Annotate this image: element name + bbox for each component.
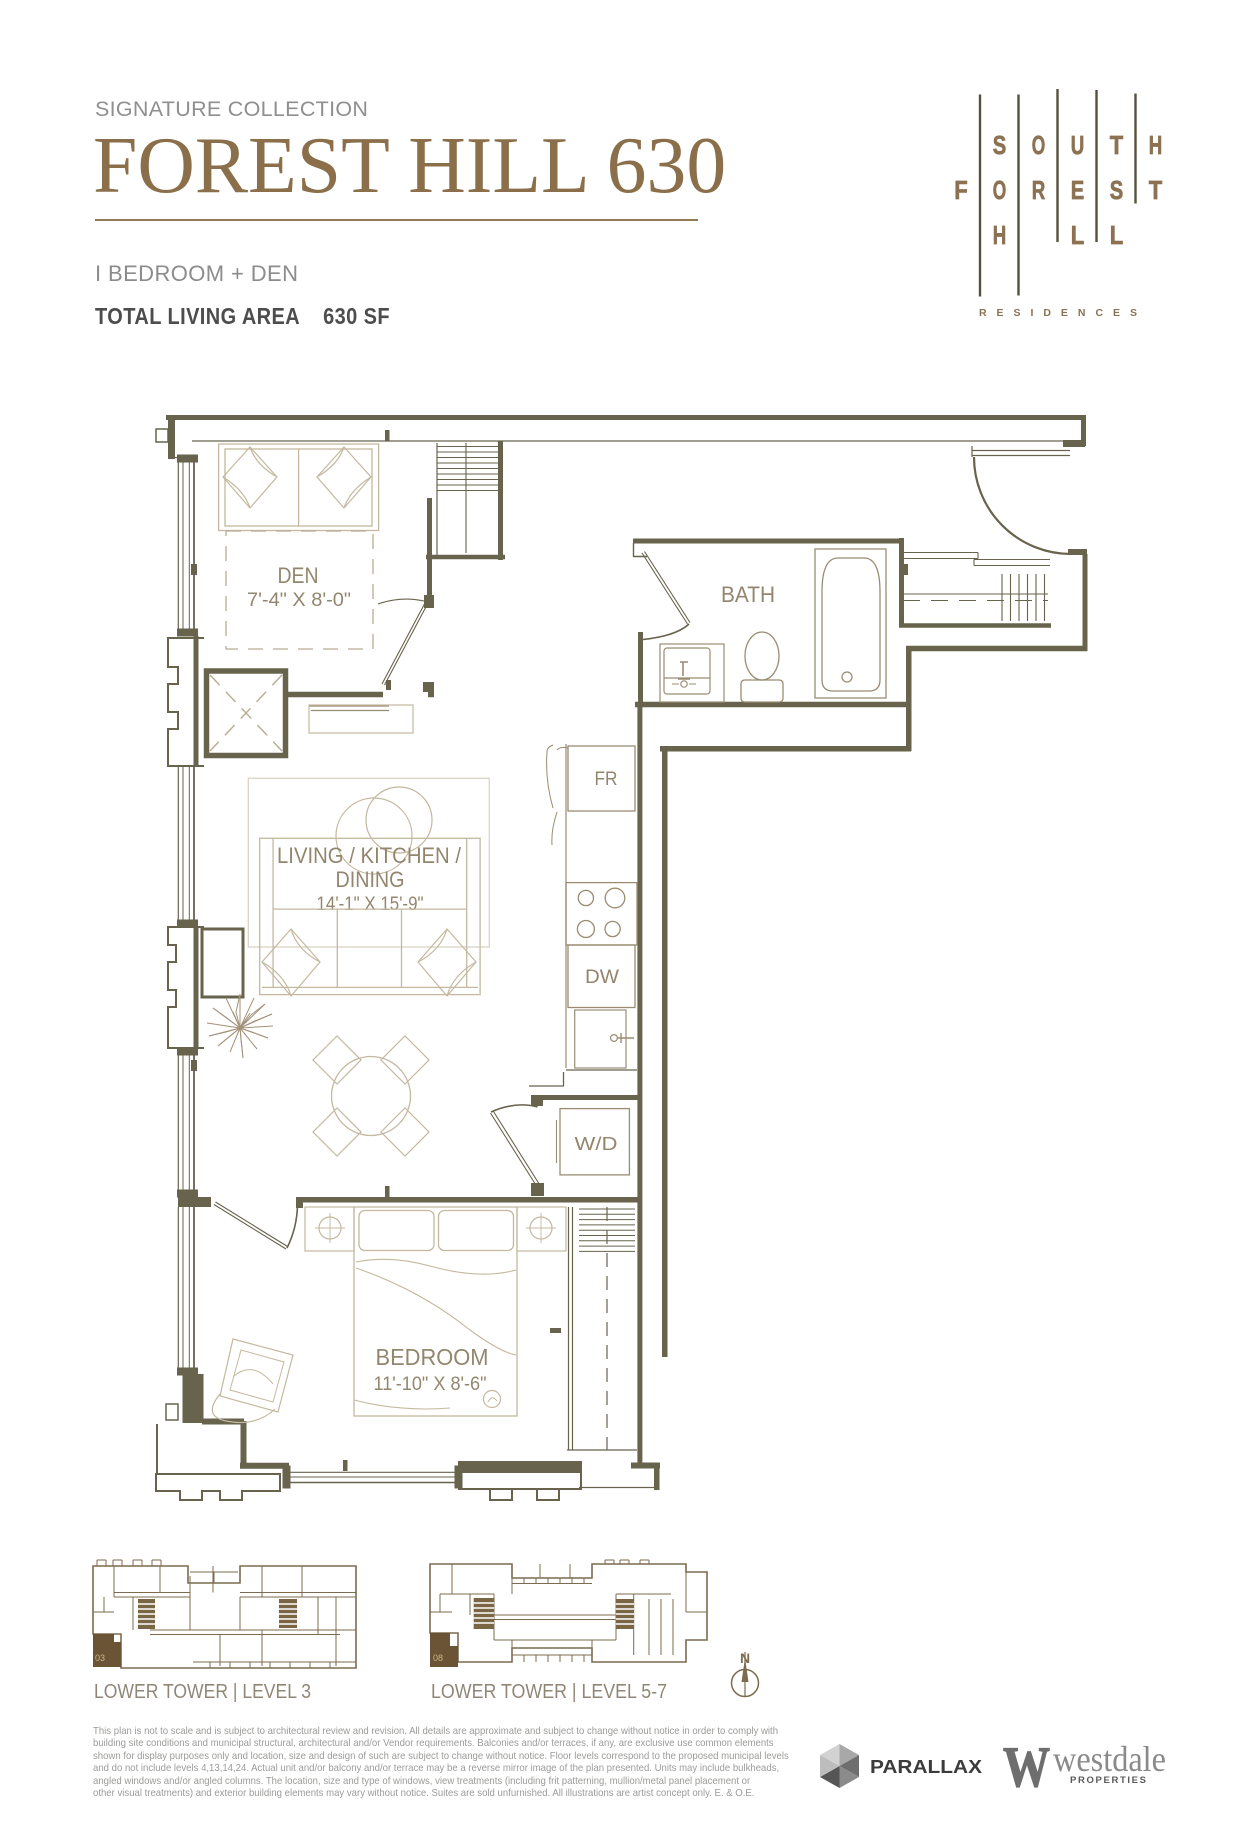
svg-text:RESIDENCES: RESIDENCES [979, 307, 1137, 319]
svg-text:T: T [1149, 175, 1163, 205]
svg-text:S: S [1110, 175, 1124, 205]
svg-text:O: O [993, 175, 1007, 205]
svg-text:LOWER TOWER | LEVEL 5-7: LOWER TOWER | LEVEL 5-7 [431, 1681, 667, 1703]
svg-text:FR: FR [595, 769, 618, 790]
svg-text:DEN: DEN [278, 563, 319, 588]
svg-text:L: L [1110, 220, 1124, 250]
svg-text:E: E [1071, 175, 1085, 205]
svg-text:W/D: W/D [575, 1134, 618, 1154]
svg-text:LOWER TOWER | LEVEL 3: LOWER TOWER | LEVEL 3 [94, 1681, 311, 1703]
svg-text:LIVING / KITCHEN /: LIVING / KITCHEN / [277, 843, 462, 868]
svg-text:PARALLAX: PARALLAX [870, 1757, 982, 1777]
svg-text:H: H [1149, 130, 1163, 160]
svg-text:F: F [954, 175, 968, 205]
svg-text:DW: DW [585, 967, 619, 988]
svg-text:03: 03 [95, 1653, 105, 1663]
svg-text:BATH: BATH [721, 582, 775, 607]
svg-text:11'-10" X 8'-6": 11'-10" X 8'-6" [374, 1373, 487, 1395]
svg-text:BEDROOM: BEDROOM [376, 1344, 489, 1370]
svg-text:R: R [1032, 175, 1046, 205]
svg-text:7'-4" X 8'-0": 7'-4" X 8'-0" [247, 590, 351, 611]
svg-text:U: U [1071, 130, 1085, 160]
svg-text:T: T [1110, 130, 1124, 160]
svg-text:O: O [1032, 130, 1046, 160]
svg-text:westdale: westdale [1053, 1739, 1166, 1779]
svg-text:14'-1" X 15'-9": 14'-1" X 15'-9" [317, 894, 424, 915]
svg-text:S: S [993, 130, 1007, 160]
svg-text:L: L [1071, 220, 1085, 250]
svg-text:H: H [993, 220, 1007, 250]
svg-text:PROPERTIES: PROPERTIES [1070, 1775, 1146, 1786]
svg-text:DINING: DINING [336, 867, 405, 892]
svg-text:08: 08 [433, 1653, 443, 1663]
